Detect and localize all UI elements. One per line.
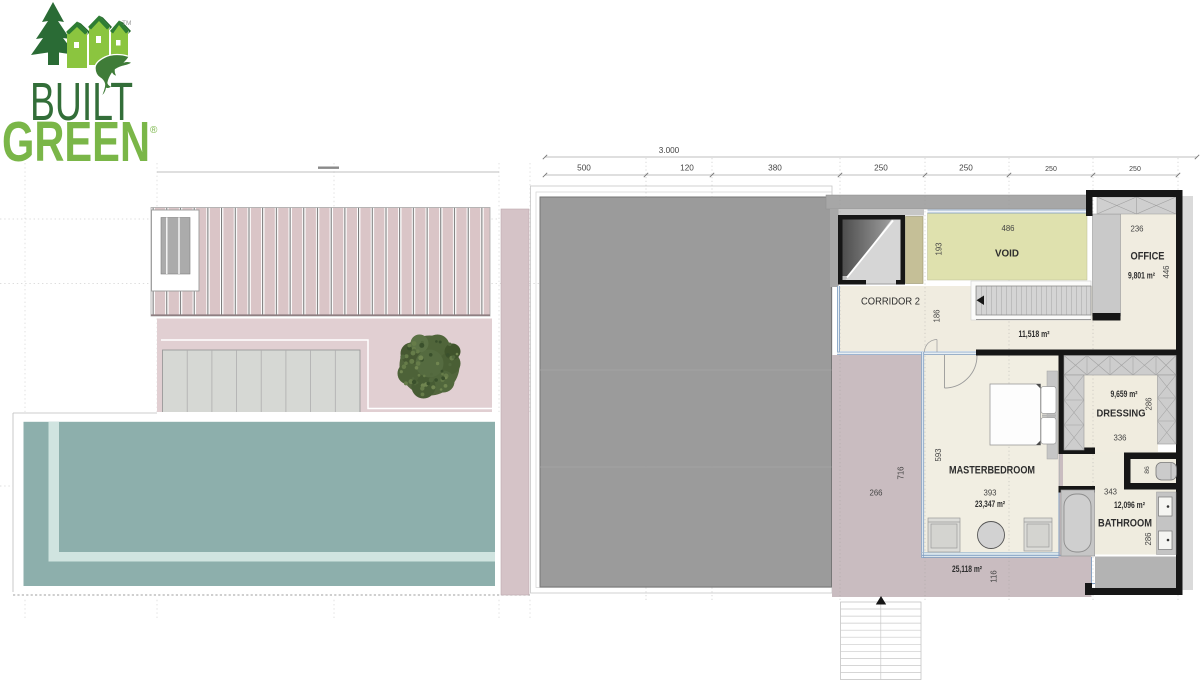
- svg-text:DRESSING: DRESSING: [1097, 408, 1146, 420]
- svg-text:286: 286: [1144, 532, 1153, 545]
- svg-text:500: 500: [577, 164, 591, 173]
- svg-text:116: 116: [990, 570, 999, 582]
- svg-text:9,801 m²: 9,801 m²: [1128, 271, 1155, 281]
- svg-text:25,118 m²: 25,118 m²: [952, 564, 982, 574]
- svg-text:186: 186: [933, 309, 942, 322]
- svg-text:393: 393: [983, 489, 996, 498]
- svg-text:250: 250: [959, 164, 973, 173]
- svg-text:BATHROOM: BATHROOM: [1098, 518, 1152, 530]
- svg-text:250: 250: [874, 164, 888, 173]
- svg-text:86: 86: [1144, 466, 1151, 474]
- svg-text:236: 236: [1130, 225, 1143, 234]
- svg-text:23,347 m²: 23,347 m²: [975, 499, 1005, 509]
- svg-text:11,518 m²: 11,518 m²: [1019, 329, 1050, 339]
- svg-text:343: 343: [1104, 488, 1117, 497]
- svg-text:12,096 m²: 12,096 m²: [1114, 500, 1145, 510]
- svg-text:193: 193: [935, 242, 944, 255]
- svg-text:266: 266: [869, 489, 882, 498]
- svg-text:®: ®: [150, 125, 158, 136]
- svg-text:VOID: VOID: [995, 249, 1019, 260]
- svg-text:250: 250: [1129, 166, 1141, 173]
- svg-text:446: 446: [1162, 265, 1171, 278]
- svg-text:336: 336: [1113, 434, 1126, 443]
- svg-text:486: 486: [1001, 224, 1014, 233]
- svg-text:120: 120: [680, 164, 694, 173]
- svg-text:GREEN: GREEN: [2, 110, 150, 174]
- svg-text:250: 250: [1045, 166, 1057, 173]
- svg-text:380: 380: [768, 164, 782, 173]
- svg-text:TM: TM: [122, 20, 131, 27]
- svg-text:286: 286: [1145, 397, 1154, 410]
- svg-text:MASTERBEDROOM: MASTERBEDROOM: [949, 465, 1035, 477]
- svg-text:593: 593: [934, 448, 943, 461]
- svg-text:CORRIDOR 2: CORRIDOR 2: [861, 297, 920, 308]
- svg-text:716: 716: [897, 466, 906, 479]
- svg-text:3.000: 3.000: [659, 146, 680, 155]
- svg-text:OFFICE: OFFICE: [1131, 251, 1165, 263]
- svg-text:9,659 m²: 9,659 m²: [1111, 389, 1138, 399]
